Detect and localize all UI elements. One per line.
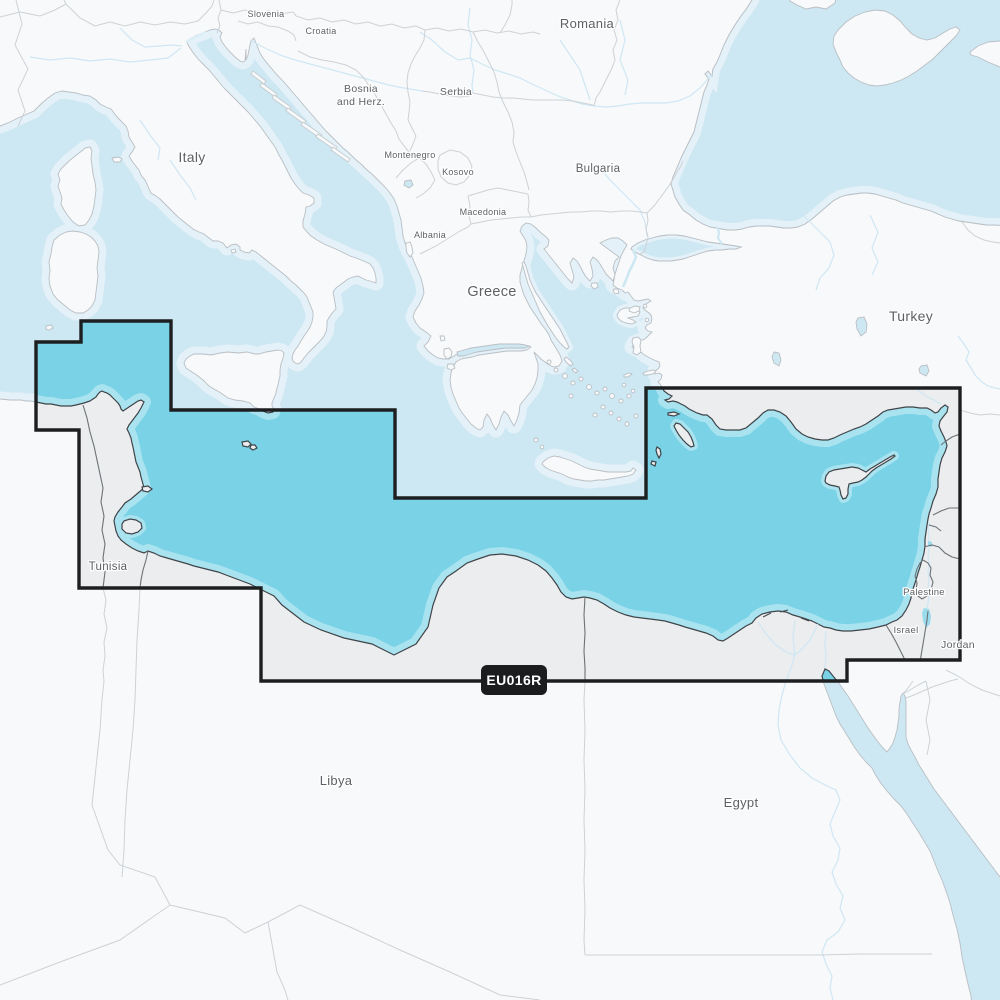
svg-text:Serbia: Serbia xyxy=(440,86,472,98)
svg-text:Italy: Italy xyxy=(178,149,205,165)
svg-text:Bosnia: Bosnia xyxy=(344,83,378,95)
svg-text:Tunisia: Tunisia xyxy=(89,561,128,573)
svg-text:Romania: Romania xyxy=(560,16,615,31)
svg-text:Montenegro: Montenegro xyxy=(384,150,435,160)
svg-text:Kosovo: Kosovo xyxy=(442,167,474,177)
svg-text:Palestine: Palestine xyxy=(903,587,945,598)
svg-text:Libya: Libya xyxy=(320,773,353,788)
svg-text:Jordan: Jordan xyxy=(941,639,975,651)
svg-text:Israel: Israel xyxy=(893,625,918,636)
svg-text:Croatia: Croatia xyxy=(305,26,336,36)
svg-text:EU016R: EU016R xyxy=(486,672,541,688)
svg-text:Slovenia: Slovenia xyxy=(248,9,285,19)
svg-text:Albania: Albania xyxy=(414,230,446,240)
svg-text:and Herz.: and Herz. xyxy=(337,96,385,108)
svg-text:Greece: Greece xyxy=(467,284,516,300)
svg-text:Turkey: Turkey xyxy=(889,308,933,324)
svg-text:Bulgaria: Bulgaria xyxy=(576,163,621,175)
svg-text:Macedonia: Macedonia xyxy=(460,207,507,217)
svg-text:Egypt: Egypt xyxy=(724,795,759,810)
